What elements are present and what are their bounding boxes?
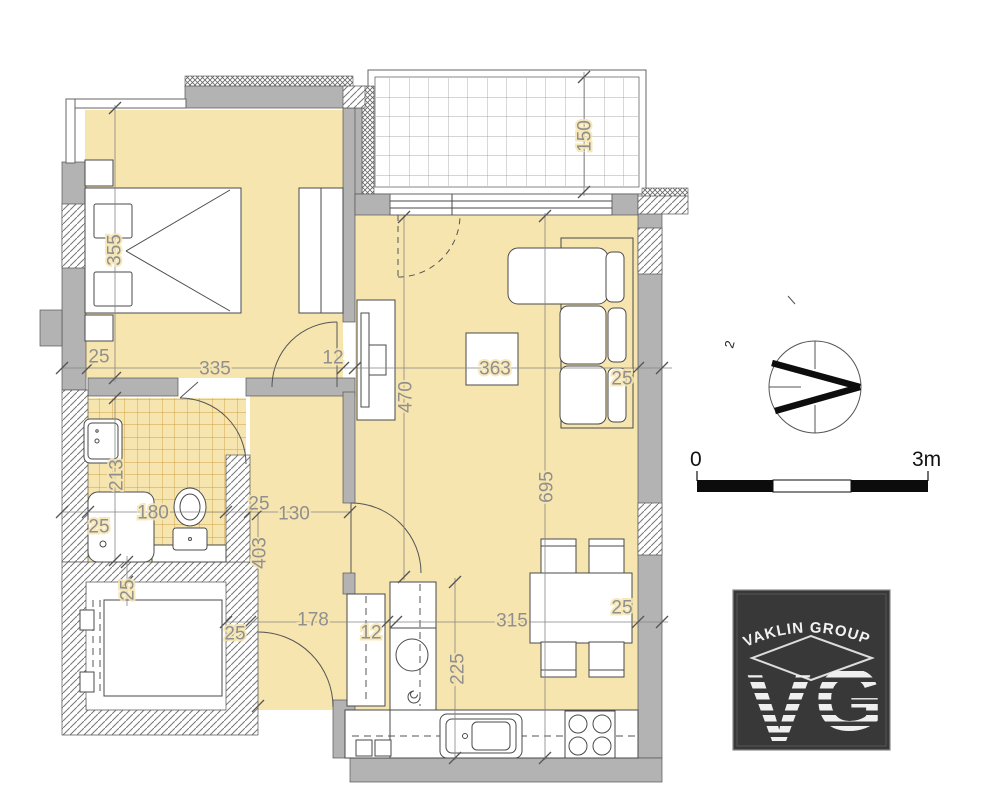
- dimension-label: 363: [479, 359, 511, 380]
- dimension-label: 25: [88, 347, 109, 368]
- elevator: [80, 600, 222, 696]
- dimension-label: 695: [537, 471, 558, 503]
- left-wall-upper: [62, 162, 86, 390]
- bathroom-left-wall: [62, 390, 88, 562]
- balcony: [368, 70, 646, 194]
- nightstand: [85, 315, 113, 341]
- dimension-label: 335: [199, 359, 231, 380]
- scale-end-label: 3m: [912, 448, 941, 471]
- dimension-label: 178: [297, 610, 329, 631]
- left-outside-stub: [40, 310, 62, 346]
- right-exterior-wall: [638, 202, 662, 758]
- dimension-label: 213: [107, 459, 128, 491]
- right-wall-hatch-seg: [638, 228, 662, 274]
- dimension-label: 355: [105, 234, 126, 266]
- hall-living-wall-stub: [343, 573, 355, 594]
- pillow: [94, 272, 132, 306]
- tv-stand: [357, 300, 395, 420]
- top-right-hatch-strip: [638, 196, 688, 214]
- dimension-label: 25: [88, 517, 109, 538]
- bedroom-corner-window-side: [66, 99, 75, 163]
- chair: [541, 642, 576, 677]
- dimension-label: 25: [611, 598, 632, 619]
- hall-living-wall: [343, 392, 355, 503]
- dimension-label: 470: [396, 381, 417, 413]
- dimension-label: 12: [360, 623, 381, 644]
- right-wall-hatch-seg: [638, 503, 662, 555]
- stove: [565, 711, 615, 758]
- bathroom-sink: [84, 419, 122, 463]
- scale-start-label: 0: [690, 448, 702, 471]
- left-wall-hatched-seg: [62, 204, 86, 268]
- scale-bar: 0 3m: [690, 448, 941, 492]
- pillow: [94, 204, 132, 238]
- dimension-label: 130: [278, 504, 310, 525]
- logo-monogram-g: G: [815, 650, 883, 749]
- bottom-wall: [350, 758, 662, 782]
- floor-plan-page: 3552533512150363254706952131802525130403…: [0, 0, 1000, 800]
- vaklin-group-logo: VAKLIN GROUP V G: [733, 590, 890, 762]
- dimension-label: 25: [118, 579, 139, 600]
- chair: [589, 539, 624, 574]
- dimension-label: 225: [448, 653, 469, 685]
- chair: [541, 539, 576, 574]
- bedroom-top-wall: [185, 86, 345, 108]
- bedroom-east-wall: [343, 108, 355, 322]
- dimension-label: 180: [137, 503, 169, 524]
- sliding-band-left-block: [355, 194, 390, 215]
- dimension-label: 403: [250, 537, 271, 569]
- compass-stray-mark: 2: [721, 339, 737, 350]
- bedroom-bottom-wall: [88, 378, 178, 396]
- dimension-label: 25: [224, 624, 245, 645]
- nightstand: [85, 160, 113, 186]
- wardrobe: [299, 188, 343, 313]
- chair: [589, 642, 624, 677]
- dimension-label: 25: [611, 369, 632, 390]
- kitchen-sink: [440, 714, 522, 758]
- balcony-tile-grid: [376, 78, 638, 186]
- balcony-corner-block: [343, 86, 365, 108]
- dimension-label: 150: [575, 120, 596, 152]
- tv: [361, 313, 369, 407]
- bedroom-corner-window: [66, 99, 186, 108]
- toilet: [173, 488, 207, 550]
- insulation-strip: [642, 188, 688, 197]
- logo-monogram-v: V: [747, 655, 811, 762]
- dimension-label: 25: [248, 494, 269, 515]
- elevator-shaft-walls: [62, 562, 258, 735]
- sliding-band-right-block: [612, 194, 638, 215]
- dimension-label: 315: [496, 611, 528, 632]
- dimension-label: 12: [322, 348, 343, 369]
- north-arrow-compass: 2: [721, 296, 861, 433]
- insulation-strip: [185, 76, 353, 87]
- bathroom-top-wall: [246, 378, 355, 396]
